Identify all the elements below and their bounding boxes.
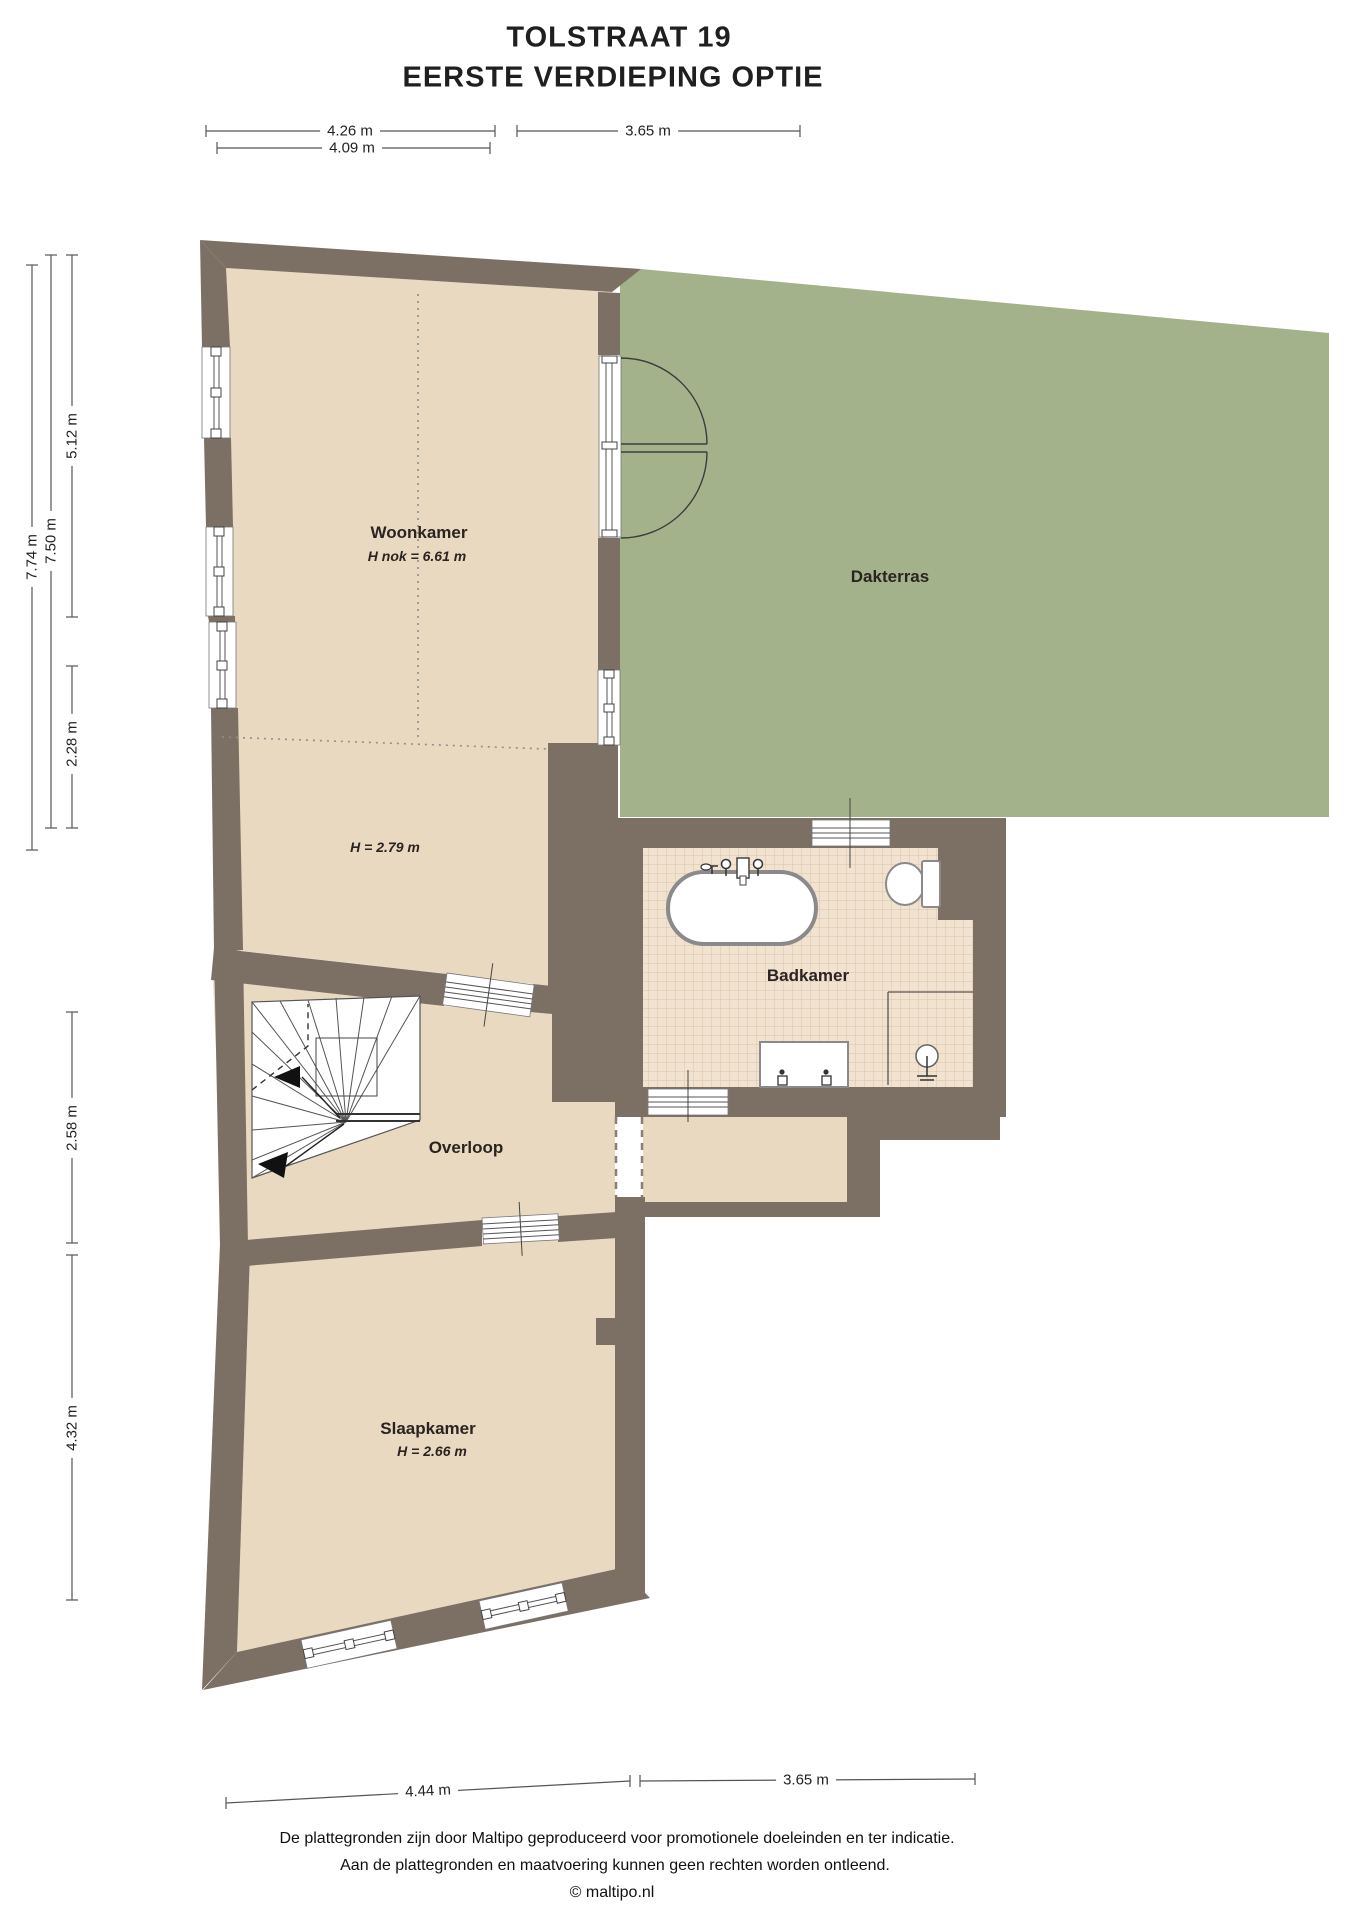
wall-east-a <box>598 292 620 355</box>
room-note-woonkamer: H nok = 6.61 m <box>368 548 466 564</box>
page-subtitle: EERSTE VERDIEPING OPTIE <box>402 62 823 95</box>
dim-left-5: 2.58 m <box>64 1098 81 1158</box>
toilet-icon <box>886 861 940 907</box>
dim-left-3: 5.12 m <box>64 406 81 466</box>
wall-west-overloop <box>214 950 248 1246</box>
dim-left-6: 4.32 m <box>64 1398 81 1458</box>
wall-west-2 <box>204 438 233 527</box>
room-note-woonkamer-laag: H = 2.79 m <box>350 839 420 855</box>
window-icon <box>598 670 620 745</box>
dim-bottom-1: 4.44 m <box>398 1781 459 1801</box>
wall-badkamer-top <box>615 818 940 848</box>
footer-copyright: © maltipo.nl <box>570 1884 655 1902</box>
dim-left-1: 7.74 m <box>24 527 41 587</box>
window-icon <box>209 622 236 708</box>
room-label-woonkamer: Woonkamer <box>371 523 468 543</box>
wall-west-3 <box>211 708 243 952</box>
hall-floor <box>643 1115 847 1202</box>
washbasin-icon <box>760 1042 848 1087</box>
wall-hall-bottom <box>643 1202 880 1217</box>
dim-bottom-2: 3.65 m <box>776 1772 836 1789</box>
dim-left-2: 7.50 m <box>43 511 60 571</box>
dim-top-2: 4.09 m <box>322 140 382 157</box>
wall-slaapkamer-bump <box>596 1318 617 1345</box>
dakterras-floor <box>620 269 1329 817</box>
wall-badkamer-tr <box>938 818 1006 920</box>
wall-east-b <box>598 538 620 670</box>
floorplan-page: TOLSTRAAT 19 EERSTE VERDIEPING OPTIE 4.2… <box>0 0 1358 1920</box>
window-icon <box>202 347 230 438</box>
wall-slaapkamer-top-right <box>558 1212 617 1242</box>
window-icon <box>206 527 233 616</box>
footer-disclaimer-1: De plattegronden zijn door Maltipo gepro… <box>279 1830 954 1848</box>
room-label-badkamer: Badkamer <box>767 966 849 986</box>
dim-top-1: 4.26 m <box>320 123 380 140</box>
wall-slaapkamer-right <box>615 1197 645 1602</box>
open-passage-icon <box>615 1117 643 1197</box>
floorplan-drawing <box>0 0 1358 1920</box>
footer-disclaimer-2: Aan de plattegronden en maatvoering kunn… <box>340 1857 890 1875</box>
wall-hall-east <box>847 1117 1000 1204</box>
dim-top-3: 3.65 m <box>618 123 678 140</box>
wall-west-pier <box>208 616 235 622</box>
page-title: TOLSTRAAT 19 <box>506 22 731 55</box>
room-label-dakterras: Dakterras <box>851 567 929 587</box>
dim-left-4: 2.28 m <box>64 714 81 774</box>
room-label-overloop: Overloop <box>429 1138 504 1158</box>
room-note-slaapkamer: H = 2.66 m <box>397 1443 467 1459</box>
room-label-slaapkamer: Slaapkamer <box>380 1419 475 1439</box>
